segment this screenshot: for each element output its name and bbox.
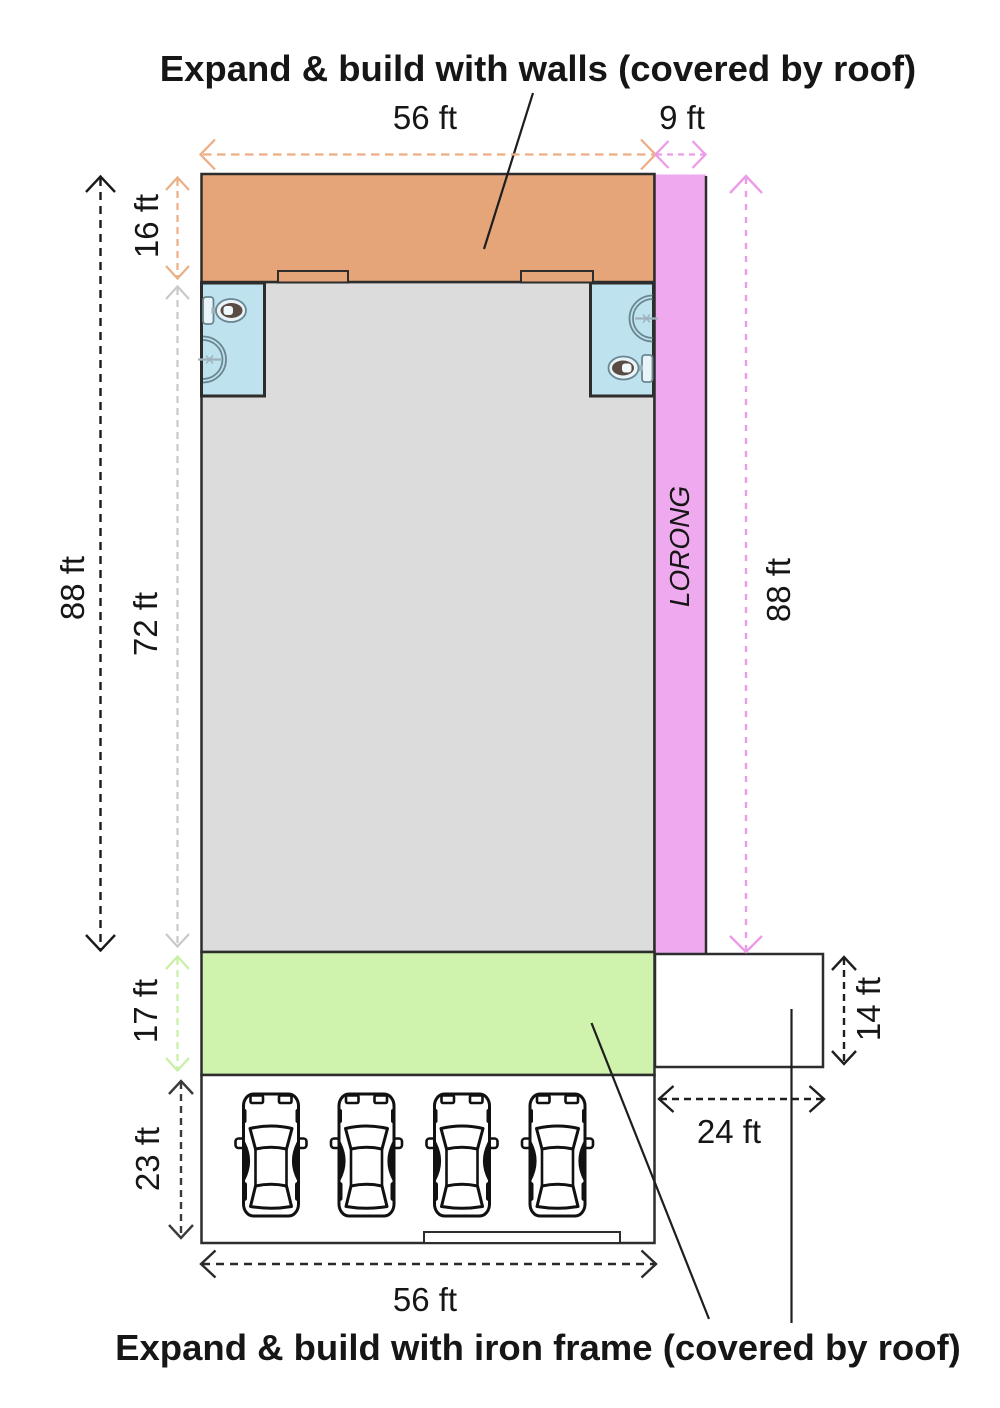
- svg-text:24 ft: 24 ft: [697, 1113, 761, 1150]
- svg-text:88 ft: 88 ft: [760, 558, 797, 622]
- svg-text:9 ft: 9 ft: [659, 99, 705, 136]
- svg-text:56 ft: 56 ft: [393, 99, 457, 136]
- svg-text:Expand & build with walls (cov: Expand & build with walls (covered by ro…: [160, 48, 916, 89]
- svg-text:LORONG: LORONG: [664, 486, 695, 607]
- svg-text:56 ft: 56 ft: [393, 1281, 457, 1318]
- svg-text:17 ft: 17 ft: [127, 979, 164, 1043]
- svg-text:88 ft: 88 ft: [54, 556, 91, 620]
- svg-text:16 ft: 16 ft: [128, 194, 165, 258]
- svg-text:14 ft: 14 ft: [850, 977, 887, 1041]
- svg-text:Expand & build with iron frame: Expand & build with iron frame (covered …: [115, 1327, 961, 1368]
- svg-text:72 ft: 72 ft: [127, 592, 164, 656]
- svg-text:23 ft: 23 ft: [129, 1127, 166, 1191]
